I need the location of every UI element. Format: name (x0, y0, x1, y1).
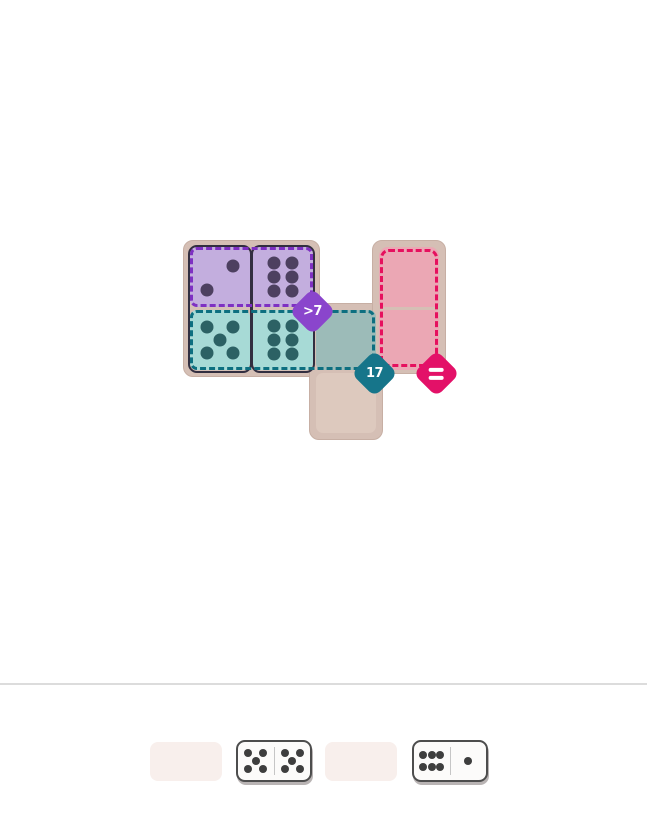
tray-domino-5-5-left-half (238, 742, 274, 780)
die-pip (436, 751, 444, 759)
die-pip (288, 757, 296, 765)
purple-constraint-label: >7 (303, 305, 322, 318)
die-pip (428, 763, 436, 771)
tray-domino-6-1-right-half (451, 742, 487, 780)
die-pip (436, 763, 444, 771)
die-pip (296, 765, 304, 773)
die-pip (419, 751, 427, 759)
die-pip (419, 763, 427, 771)
die-pip (464, 757, 472, 765)
region-outline-teal (190, 310, 375, 370)
die-pip (259, 749, 267, 757)
tray-divider-line (0, 683, 647, 685)
tray-domino-6-1-left-half (414, 742, 450, 780)
tray-domino-5-5[interactable] (236, 740, 312, 782)
die-pip (296, 749, 304, 757)
domino-puzzle-screen: >7 17 (0, 0, 647, 830)
tray-slot-3-empty (325, 742, 397, 781)
region-outline-pink (380, 249, 438, 367)
die-pip (428, 751, 436, 759)
die-pip (244, 749, 252, 757)
tray-slot-1-empty (150, 742, 222, 781)
equals-icon (429, 368, 444, 380)
teal-constraint-label: 17 (366, 367, 383, 380)
tray-domino-6-1[interactable] (412, 740, 488, 782)
region-outline-purple (190, 247, 313, 307)
die-pip (252, 757, 260, 765)
die-pip (281, 749, 289, 757)
die-pip (281, 765, 289, 773)
tray-domino-5-5-right-half (275, 742, 311, 780)
die-pip (259, 765, 267, 773)
die-pip (244, 765, 252, 773)
